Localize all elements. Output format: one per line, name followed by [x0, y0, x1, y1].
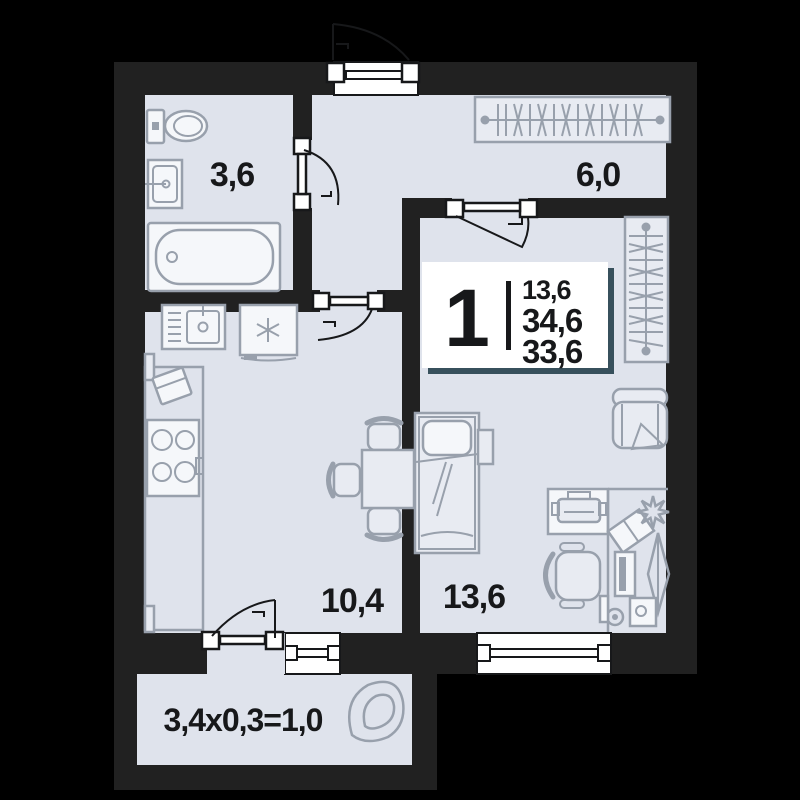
- wall-bedroom-top-right: [528, 198, 668, 218]
- toilet-icon: [147, 110, 207, 143]
- armchair-icon: [613, 389, 667, 449]
- door-hinge: [520, 200, 537, 217]
- stove-icon: [147, 420, 203, 496]
- living-area-value: 13,6: [522, 275, 572, 305]
- door-hinge: [313, 293, 329, 309]
- wall-bottom-1: [114, 633, 207, 674]
- chair-icon: [368, 424, 400, 450]
- other-area-value: 33,6: [522, 333, 583, 370]
- wall-left: [114, 62, 145, 674]
- bedroom-area-label: 13,6: [443, 578, 505, 616]
- wall-right: [666, 62, 697, 674]
- printer-desk: [548, 489, 608, 534]
- wall-bedroom-top-left: [402, 198, 452, 218]
- door-leaf: [464, 203, 520, 211]
- door-hinge: [294, 194, 310, 210]
- pillow-icon: [423, 421, 471, 455]
- chair-icon: [334, 464, 360, 496]
- kitchen-area-label: 10,4: [321, 582, 384, 620]
- door-swing-arc: [333, 24, 409, 60]
- nightstand-icon: [478, 430, 493, 464]
- door-leaf: [220, 636, 265, 644]
- wall-bathroom-right-upper: [293, 95, 312, 140]
- info-divider: [506, 281, 511, 350]
- kitchen-sink-icon: [162, 305, 225, 349]
- dining-table-icon: [362, 450, 414, 508]
- info-box: 1 13,6 34,6 33,6: [422, 262, 614, 374]
- bathroom-sink-icon: [145, 160, 182, 208]
- box-icon: [630, 598, 656, 626]
- unit-number: 1: [444, 273, 490, 364]
- bed-icon: [415, 413, 479, 553]
- chair-icon: [368, 508, 400, 534]
- bathroom-area-label: 3,6: [210, 156, 254, 194]
- door-leaf: [330, 297, 368, 305]
- kitchen-window-icon: [285, 633, 340, 674]
- door-hinge: [402, 63, 419, 82]
- wall-balcony-bottom: [114, 765, 437, 790]
- wall-balcony-right: [412, 674, 437, 790]
- floor-plan-canvas: 3,6 6,0 10,4 13,6 3,4x0,3=1,0 1 13,6 34,…: [0, 0, 800, 800]
- door-leaf: [298, 154, 306, 194]
- door-hinge: [446, 200, 463, 217]
- hall-area-label: 6,0: [576, 156, 620, 194]
- floor-plan-svg: 3,6 6,0 10,4 13,6 3,4x0,3=1,0 1 13,6 34,…: [0, 0, 800, 800]
- bathtub-icon: [148, 223, 280, 291]
- balcony-area-label: 3,4x0,3=1,0: [164, 702, 323, 738]
- wall-top-left: [114, 62, 334, 95]
- door-hinge: [202, 632, 219, 649]
- bedroom-window-icon: [477, 633, 611, 674]
- bedroom-wardrobe-icon: [625, 217, 668, 362]
- door-hinge: [327, 63, 344, 82]
- wall-bottom-3: [611, 633, 697, 674]
- door-hinge: [368, 293, 384, 309]
- handle-stub: [600, 596, 608, 622]
- entrance-door: [327, 24, 419, 95]
- hall-wardrobe-icon: [475, 97, 670, 142]
- fridge-icon: [240, 305, 297, 361]
- wall-top-right: [418, 62, 697, 95]
- wall-bathroom-right-lower: [293, 208, 312, 290]
